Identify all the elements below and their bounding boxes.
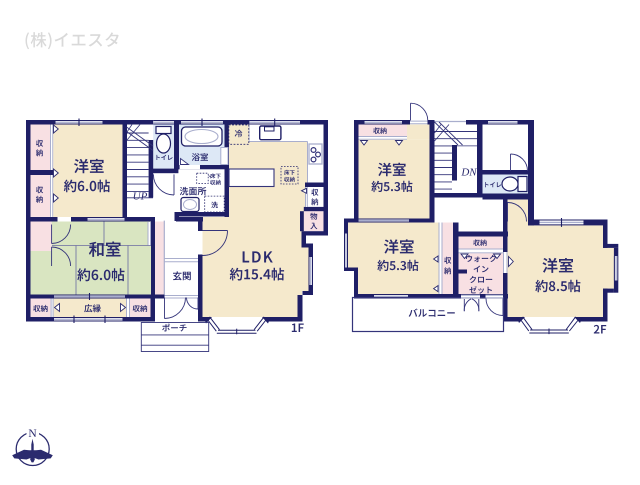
svg-text:DN: DN: [460, 167, 477, 179]
svg-text:UP: UP: [133, 191, 148, 203]
svg-text:N: N: [28, 428, 37, 440]
